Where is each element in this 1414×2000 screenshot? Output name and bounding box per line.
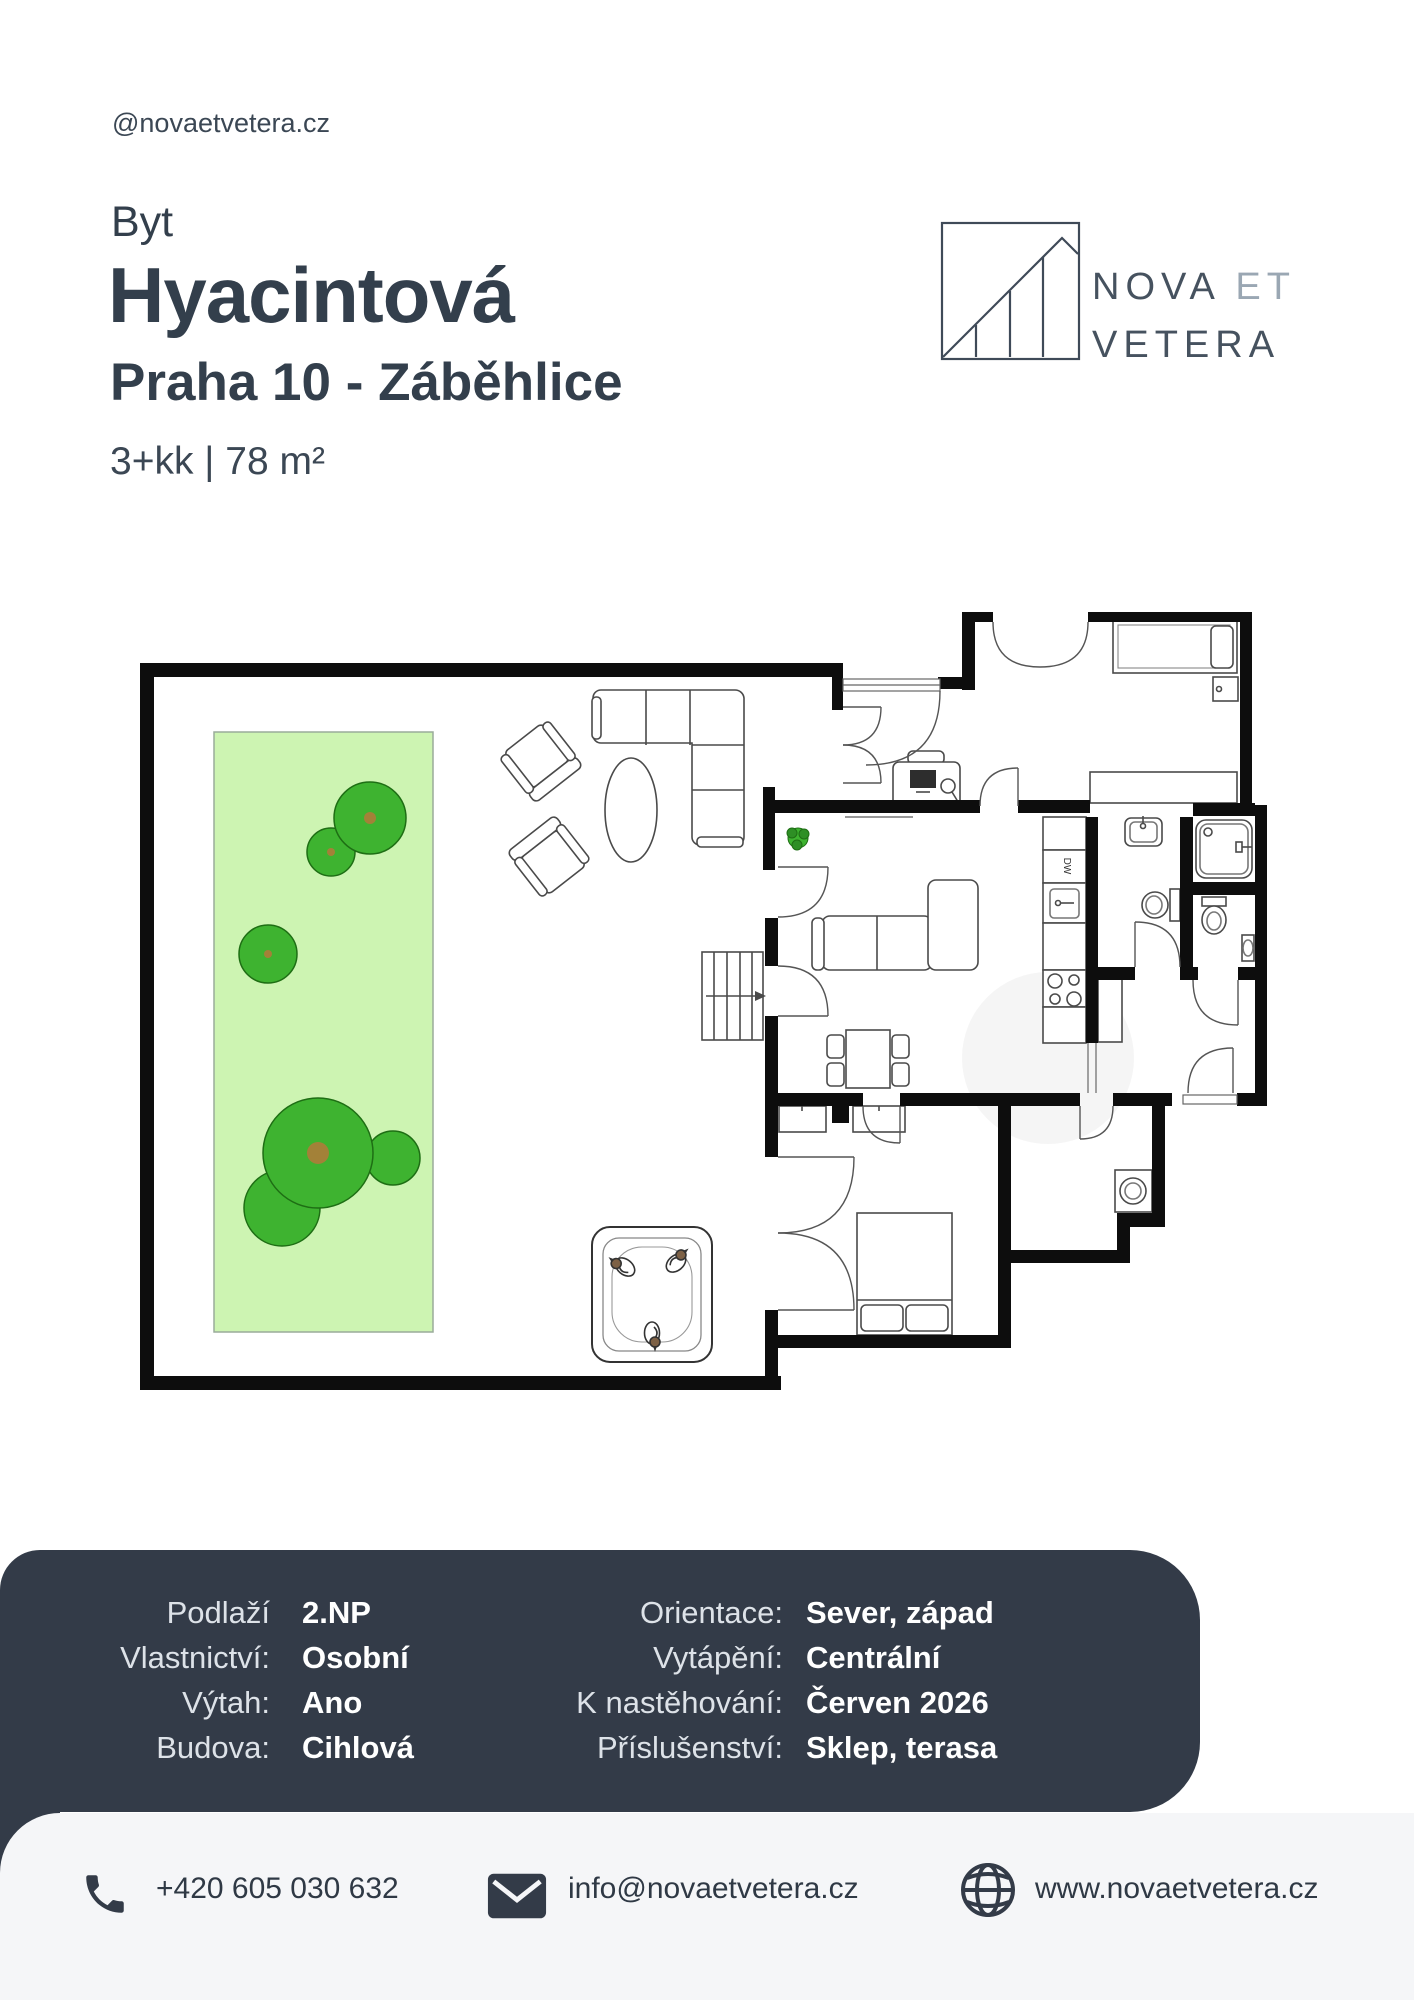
living-sofa xyxy=(812,880,978,970)
wc-sink xyxy=(1242,935,1254,961)
bed-bottom xyxy=(857,1213,952,1335)
stairs xyxy=(702,952,766,1040)
shower xyxy=(1196,820,1252,878)
detail-label: Vlastnictví: xyxy=(0,1635,270,1680)
detail-label: Podlaží xyxy=(0,1590,270,1635)
oval-table xyxy=(605,758,657,862)
contact-website: www.novaetvetera.cz xyxy=(1035,1872,1318,1906)
terrace-garden xyxy=(214,732,433,1332)
logo-word-nova: NOVA xyxy=(1092,266,1219,308)
globe-icon xyxy=(958,1858,1018,1922)
detail-row: K nastěhování: Červen 2026 xyxy=(420,1680,1200,1725)
detail-label: Budova: xyxy=(0,1725,270,1770)
contact-phone: +420 605 030 632 xyxy=(156,1872,399,1906)
logo-word-vetera: VETERA xyxy=(1092,324,1280,366)
detail-row: Příslušenství: Sklep, terasa xyxy=(420,1725,1200,1770)
logo-wordmark: NOVA ET VETERA xyxy=(1092,258,1296,374)
detail-label: Výtah: xyxy=(0,1680,270,1725)
detail-value: 2.NP xyxy=(302,1590,371,1635)
contact-bar xyxy=(0,1813,1414,2000)
plant xyxy=(787,828,809,850)
dining-set xyxy=(827,1030,909,1088)
detail-value: Sklep, terasa xyxy=(806,1725,997,1770)
phone-icon xyxy=(80,1862,130,1926)
wardrobe-counter xyxy=(1090,772,1237,803)
bathroom-toilet xyxy=(1142,889,1180,921)
logo-word-et: ET xyxy=(1235,266,1296,308)
page-title: Hyacintová xyxy=(108,250,514,341)
armchair-1 xyxy=(498,719,583,804)
listing-location: Praha 10 - Záběhlice xyxy=(110,352,623,413)
detail-value: Červen 2026 xyxy=(806,1680,989,1725)
flyer-page: DW @novaetvetera.cz Byt Hyacintová Praha… xyxy=(0,0,1414,2000)
terrace-furniture xyxy=(498,690,766,1362)
email-icon xyxy=(486,1864,548,1928)
washing-machine xyxy=(1115,1170,1152,1212)
logo-mark xyxy=(942,223,1079,359)
bed-top xyxy=(1113,620,1238,701)
detail-label: Vytápění: xyxy=(420,1635,783,1680)
detail-value: Osobní xyxy=(302,1635,409,1680)
detail-value: Sever, západ xyxy=(806,1590,994,1635)
closet xyxy=(1098,975,1122,1042)
detail-value: Centrální xyxy=(806,1635,940,1680)
armchair-2 xyxy=(506,814,591,899)
bathroom-sink xyxy=(1125,816,1162,846)
detail-value: Cihlová xyxy=(302,1725,414,1770)
dishwasher-label: DW xyxy=(1061,858,1072,875)
contact-email: info@novaetvetera.cz xyxy=(568,1872,859,1906)
listing-category: Byt xyxy=(111,198,173,247)
listing-specs: 3+kk | 78 m² xyxy=(110,440,325,484)
social-handle: @novaetvetera.cz xyxy=(112,108,330,139)
detail-value: Ano xyxy=(302,1680,362,1725)
wc-toilet xyxy=(1202,897,1226,934)
detail-label: K nastěhování: xyxy=(420,1680,783,1725)
detail-row: Orientace: Sever, západ xyxy=(420,1590,1200,1635)
detail-label: Příslušenství: xyxy=(420,1725,783,1770)
detail-row: Vytápění: Centrální xyxy=(420,1635,1200,1680)
detail-label: Orientace: xyxy=(420,1590,783,1635)
